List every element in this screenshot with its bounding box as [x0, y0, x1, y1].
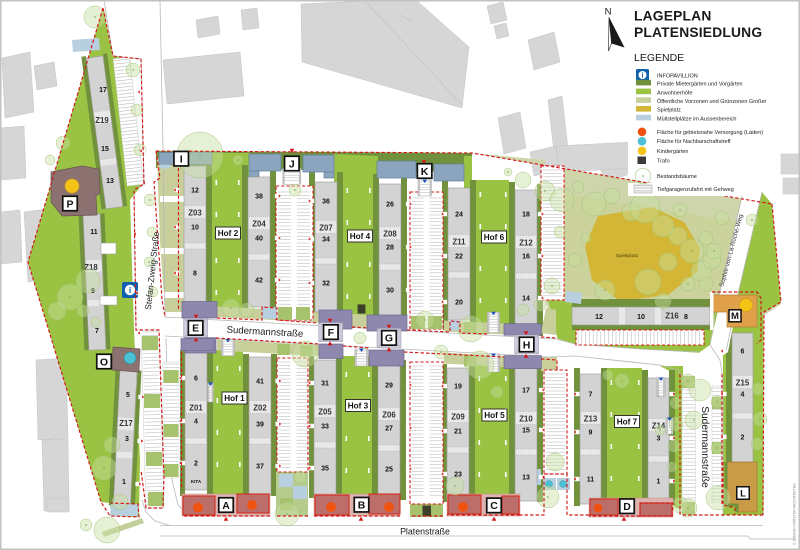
- svg-text:12: 12: [595, 314, 603, 321]
- svg-text:i: i: [642, 73, 644, 80]
- svg-text:21: 21: [454, 428, 462, 435]
- svg-text:18: 18: [522, 211, 530, 218]
- svg-text:Sudermannstraße: Sudermannstraße: [699, 406, 710, 488]
- svg-text:11: 11: [587, 476, 595, 483]
- svg-text:© STEFAN FORSTER ARCHITEKTEN: © STEFAN FORSTER ARCHITEKTEN: [793, 483, 797, 545]
- svg-text:Z03: Z03: [188, 209, 202, 218]
- svg-text:Hof 3: Hof 3: [348, 402, 369, 411]
- svg-text:27: 27: [385, 425, 393, 432]
- svg-text:Kindergärten: Kindergärten: [657, 149, 689, 155]
- svg-text:22: 22: [455, 253, 463, 260]
- svg-text:39: 39: [256, 421, 264, 428]
- svg-text:Z15: Z15: [736, 379, 750, 388]
- svg-text:17: 17: [522, 387, 530, 394]
- svg-text:Hof 7: Hof 7: [617, 418, 638, 427]
- svg-text:Tiefgaragenzufahrt mit Gehweg: Tiefgaragenzufahrt mit Gehweg: [657, 187, 734, 193]
- svg-text:P: P: [66, 198, 73, 210]
- svg-text:17: 17: [99, 87, 107, 94]
- svg-text:32: 32: [322, 280, 330, 287]
- svg-text:1: 1: [122, 479, 126, 486]
- svg-text:Z16: Z16: [665, 312, 679, 321]
- svg-text:2: 2: [194, 460, 198, 467]
- svg-text:Fläche für gebietsnahe Versorg: Fläche für gebietsnahe Versorgung (Läden…: [657, 130, 763, 136]
- svg-text:A: A: [222, 500, 230, 512]
- svg-text:36: 36: [322, 198, 330, 205]
- svg-text:Z01: Z01: [189, 404, 203, 413]
- svg-text:O: O: [100, 356, 108, 368]
- svg-text:Anwohnerhöfe: Anwohnerhöfe: [657, 90, 692, 96]
- svg-text:4: 4: [194, 418, 198, 425]
- svg-text:K: K: [421, 166, 429, 178]
- svg-text:15: 15: [522, 427, 530, 434]
- svg-text:E: E: [192, 323, 199, 335]
- svg-text:Z11: Z11: [452, 238, 466, 247]
- svg-text:28: 28: [386, 244, 394, 251]
- svg-text:9: 9: [589, 429, 593, 436]
- svg-text:LAGEPLAN: LAGEPLAN: [634, 9, 711, 24]
- svg-text:Öffentliche Vorzonen und Grünz: Öffentliche Vorzonen und Grünzonen Große…: [657, 98, 767, 105]
- svg-text:Z07: Z07: [319, 224, 332, 233]
- svg-text:5: 5: [126, 392, 130, 399]
- svg-text:Z13: Z13: [584, 415, 598, 424]
- svg-text:Hof 1: Hof 1: [224, 394, 245, 403]
- svg-text:H: H: [523, 339, 531, 351]
- svg-text:N: N: [605, 7, 612, 18]
- svg-text:Z05: Z05: [318, 408, 332, 417]
- svg-text:Hof 5: Hof 5: [484, 411, 505, 420]
- svg-text:Z10: Z10: [519, 415, 533, 424]
- svg-text:3: 3: [125, 436, 129, 443]
- svg-text:15: 15: [101, 146, 109, 153]
- svg-text:33: 33: [321, 423, 329, 430]
- svg-text:24: 24: [455, 211, 463, 218]
- svg-text:Fläche für Nachbarschaftstreff: Fläche für Nachbarschaftstreff: [657, 139, 731, 145]
- svg-text:12: 12: [191, 187, 199, 194]
- svg-text:10: 10: [191, 224, 199, 231]
- svg-text:7: 7: [95, 328, 99, 335]
- svg-text:Z17: Z17: [119, 419, 132, 428]
- svg-text:Z02: Z02: [253, 404, 267, 413]
- svg-text:11: 11: [90, 229, 98, 236]
- svg-text:Müllstellplätze im Aussenberei: Müllstellplätze im Aussenbereich: [657, 117, 736, 123]
- svg-text:Spielplatz: Spielplatz: [657, 108, 681, 114]
- svg-text:C: C: [490, 500, 498, 512]
- svg-text:Z08: Z08: [383, 230, 397, 239]
- svg-text:37: 37: [256, 463, 264, 470]
- svg-text:19: 19: [454, 383, 462, 390]
- svg-text:2: 2: [741, 434, 745, 441]
- svg-text:16: 16: [522, 253, 530, 260]
- svg-text:6: 6: [194, 375, 198, 382]
- svg-text:3: 3: [657, 435, 661, 442]
- svg-text:13: 13: [522, 474, 530, 481]
- svg-text:F: F: [328, 327, 335, 339]
- svg-text:i: i: [129, 285, 131, 295]
- svg-text:38: 38: [255, 193, 263, 200]
- svg-text:13: 13: [106, 178, 114, 185]
- svg-text:7: 7: [589, 391, 593, 398]
- svg-text:LEGENDE: LEGENDE: [634, 52, 684, 64]
- svg-text:40: 40: [255, 235, 263, 242]
- svg-text:Z19: Z19: [95, 116, 109, 125]
- svg-text:B: B: [358, 499, 366, 511]
- svg-text:29: 29: [385, 382, 393, 389]
- svg-text:Z09: Z09: [451, 413, 465, 422]
- svg-text:10: 10: [637, 314, 645, 321]
- svg-text:INFOPAVILLION: INFOPAVILLION: [657, 74, 698, 80]
- svg-text:42: 42: [255, 277, 263, 284]
- svg-text:Z06: Z06: [382, 411, 396, 420]
- svg-text:Hof 2: Hof 2: [218, 229, 239, 238]
- svg-text:M: M: [731, 311, 739, 322]
- svg-text:8: 8: [684, 314, 688, 321]
- svg-text:34: 34: [322, 236, 330, 243]
- svg-text:1: 1: [657, 478, 661, 485]
- svg-text:J: J: [289, 158, 295, 170]
- svg-text:35: 35: [321, 465, 329, 472]
- svg-text:Private Mietergärten und Vorgä: Private Mietergärten und Vorgärten: [657, 82, 743, 88]
- svg-text:Spielplatz: Spielplatz: [616, 253, 639, 259]
- svg-text:8: 8: [193, 270, 197, 277]
- svg-text:4: 4: [741, 391, 745, 398]
- svg-text:25: 25: [385, 466, 393, 473]
- svg-text:Hof 6: Hof 6: [484, 233, 505, 242]
- svg-text:Z12: Z12: [519, 239, 533, 248]
- svg-text:G: G: [385, 333, 393, 345]
- svg-text:KITA: KITA: [191, 479, 202, 484]
- svg-text:L: L: [740, 488, 746, 499]
- svg-text:Z04: Z04: [252, 220, 266, 229]
- svg-text:41: 41: [256, 378, 264, 385]
- svg-text:31: 31: [321, 380, 329, 387]
- svg-text:Bestandsbäume: Bestandsbäume: [657, 174, 697, 180]
- svg-text:PLATENSIEDLUNG: PLATENSIEDLUNG: [634, 25, 762, 40]
- svg-text:6: 6: [741, 348, 745, 355]
- svg-text:14: 14: [522, 295, 530, 302]
- svg-text:Hof 4: Hof 4: [350, 232, 371, 241]
- svg-text:Trafo: Trafo: [657, 158, 670, 164]
- svg-text:Platenstraße: Platenstraße: [400, 527, 450, 537]
- svg-text:I: I: [180, 153, 183, 165]
- svg-text:D: D: [623, 501, 631, 513]
- svg-text:26: 26: [386, 201, 394, 208]
- svg-text:30: 30: [386, 287, 394, 294]
- svg-text:20: 20: [455, 299, 463, 306]
